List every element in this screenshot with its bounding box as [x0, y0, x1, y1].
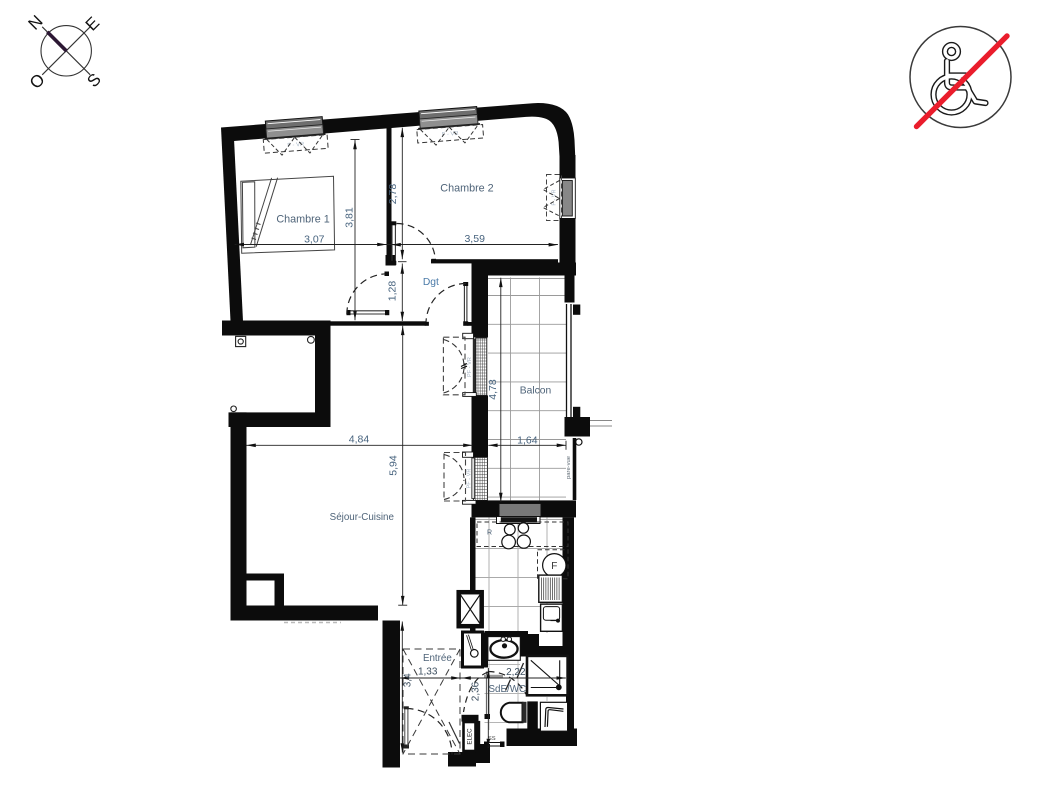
- svg-text:4,78: 4,78: [487, 379, 499, 400]
- svg-text:4,84: 4,84: [349, 434, 370, 446]
- svg-text:1,64: 1,64: [517, 435, 538, 447]
- svg-text:F: F: [551, 561, 557, 572]
- svg-text:2,22: 2,22: [506, 667, 526, 678]
- svg-text:Chambre 1: Chambre 1: [276, 214, 329, 226]
- svg-text:ELEC: ELEC: [467, 728, 474, 745]
- svg-text:Balcon: Balcon: [520, 386, 552, 397]
- svg-text:3,4: 3,4: [402, 673, 413, 687]
- svg-text:PF - VR: PF - VR: [467, 469, 473, 489]
- svg-text:F - VR: F - VR: [287, 142, 304, 149]
- svg-text:pare-vue: pare-vue: [566, 456, 572, 479]
- svg-text:Entrée: Entrée: [423, 653, 452, 664]
- svg-text:F - VR: F - VR: [552, 189, 558, 205]
- svg-text:SdE/WC: SdE/WC: [489, 684, 527, 695]
- svg-text:Chambre 2: Chambre 2: [440, 183, 493, 195]
- svg-text:1,28: 1,28: [387, 281, 399, 302]
- svg-text:3,07: 3,07: [304, 234, 325, 246]
- svg-text:R: R: [487, 530, 492, 537]
- svg-text:Dgt: Dgt: [423, 277, 439, 288]
- svg-text:3,81: 3,81: [343, 207, 355, 228]
- svg-text:2,36: 2,36: [471, 681, 482, 701]
- svg-text:1,33: 1,33: [418, 667, 438, 678]
- svg-text:PF - VR: PF - VR: [467, 357, 473, 377]
- svg-text:Séjour-Cuisine: Séjour-Cuisine: [330, 512, 395, 523]
- svg-text:2,78: 2,78: [387, 184, 399, 205]
- svg-text:5,94: 5,94: [387, 455, 399, 476]
- svg-text:3,59: 3,59: [464, 233, 485, 245]
